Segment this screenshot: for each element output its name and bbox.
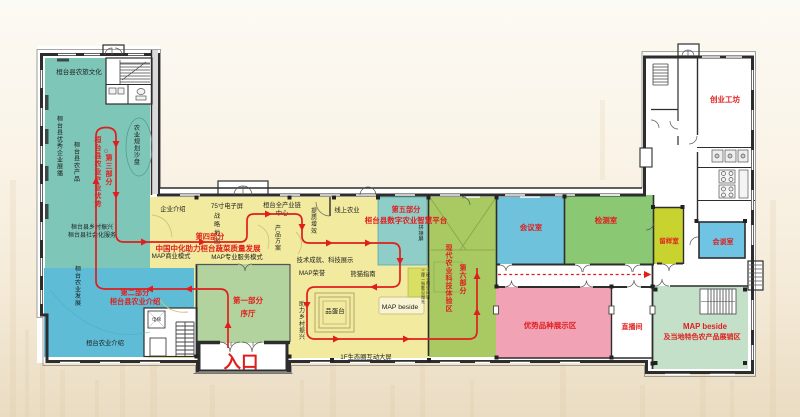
svg-text:线上农业: 线上农业	[334, 205, 359, 214]
svg-text:第五部分: 第五部分	[392, 205, 422, 214]
svg-text:桓台全产业链: 桓台全产业链	[263, 200, 301, 209]
svg-text:桓台农业发展: 桓台农业发展	[75, 265, 81, 307]
svg-text:桓台县农业产业优势: 桓台县农业产业优势	[94, 135, 102, 208]
svg-text:入口: 入口	[224, 352, 259, 372]
svg-text:会谈室: 会谈室	[713, 237, 734, 246]
svg-text:桓台县农业介绍: 桓台县农业介绍	[110, 297, 160, 306]
svg-text:三维全相空间演: 三维全相空间演	[426, 269, 430, 299]
svg-text:熊猫指南: 熊猫指南	[350, 269, 375, 278]
svg-text:桓台县农产品: 桓台县农产品	[74, 141, 80, 183]
svg-text:桓台县优秀企业展播: 桓台县优秀企业展播	[57, 115, 64, 177]
svg-text:农业规划沙盘: 农业规划沙盘	[134, 124, 140, 166]
svg-text:75寸电子屏: 75寸电子屏	[211, 201, 243, 210]
svg-text:会议室: 会议室	[520, 222, 543, 232]
svg-text:电梯: 电梯	[152, 316, 161, 323]
svg-text:助力乡村振兴: 助力乡村振兴	[299, 300, 305, 341]
svg-text:第三部分: 第三部分	[106, 153, 113, 186]
svg-text:检测室: 检测室	[595, 215, 618, 225]
svg-text:品蛋台: 品蛋台	[325, 306, 345, 315]
svg-text:第六部分: 第六部分	[460, 263, 467, 295]
svg-text:桓台县社会化服务: 桓台县社会化服务	[68, 231, 116, 239]
svg-text:MAP beside: MAP beside	[382, 304, 419, 311]
svg-text:现代农业科技体验区: 现代农业科技体验区	[445, 243, 454, 313]
svg-text:桓台县数字农业智慧平台: 桓台县数字农业智慧平台	[365, 215, 448, 225]
svg-text:留样室: 留样室	[659, 236, 679, 245]
svg-text:MAP荣誉: MAP荣誉	[299, 268, 326, 277]
svg-text:中心: 中心	[276, 208, 289, 217]
svg-text:桓台县乡村振兴: 桓台县乡村振兴	[71, 223, 113, 231]
svg-text:创业工坊: 创业工坊	[709, 94, 740, 104]
svg-text:拼接屏: 拼接屏	[418, 223, 423, 243]
svg-text:产品方案: 产品方案	[275, 224, 281, 252]
svg-text:企业介绍: 企业介绍	[160, 204, 185, 213]
svg-text:MAP beside: MAP beside	[683, 322, 728, 331]
svg-text:优势品种展示区: 优势品种展示区	[524, 320, 577, 330]
svg-text:三楼一指数见园社: 三楼一指数见园社	[421, 269, 425, 304]
svg-text:MAP专业服务模式: MAP专业服务模式	[211, 252, 263, 261]
svg-text:第一部分: 第一部分	[233, 295, 263, 305]
svg-text:中国中化助力桓台蔬菜质量发展: 中国中化助力桓台蔬菜质量发展	[156, 243, 261, 253]
svg-text:桓台县农旅文化: 桓台县农旅文化	[56, 67, 102, 76]
svg-text:提质增效: 提质增效	[311, 207, 317, 235]
svg-text:1F生态圈互动大屏: 1F生态圈互动大屏	[340, 352, 391, 361]
svg-text:直播间: 直播间	[622, 322, 643, 331]
svg-text:及当地特色农产品展销区: 及当地特色农产品展销区	[664, 332, 741, 341]
svg-text:桓台农业介绍: 桓台农业介绍	[86, 338, 124, 347]
svg-text:技术成就、科技展示: 技术成就、科技展示	[297, 255, 354, 264]
svg-text:序厅: 序厅	[241, 308, 256, 318]
